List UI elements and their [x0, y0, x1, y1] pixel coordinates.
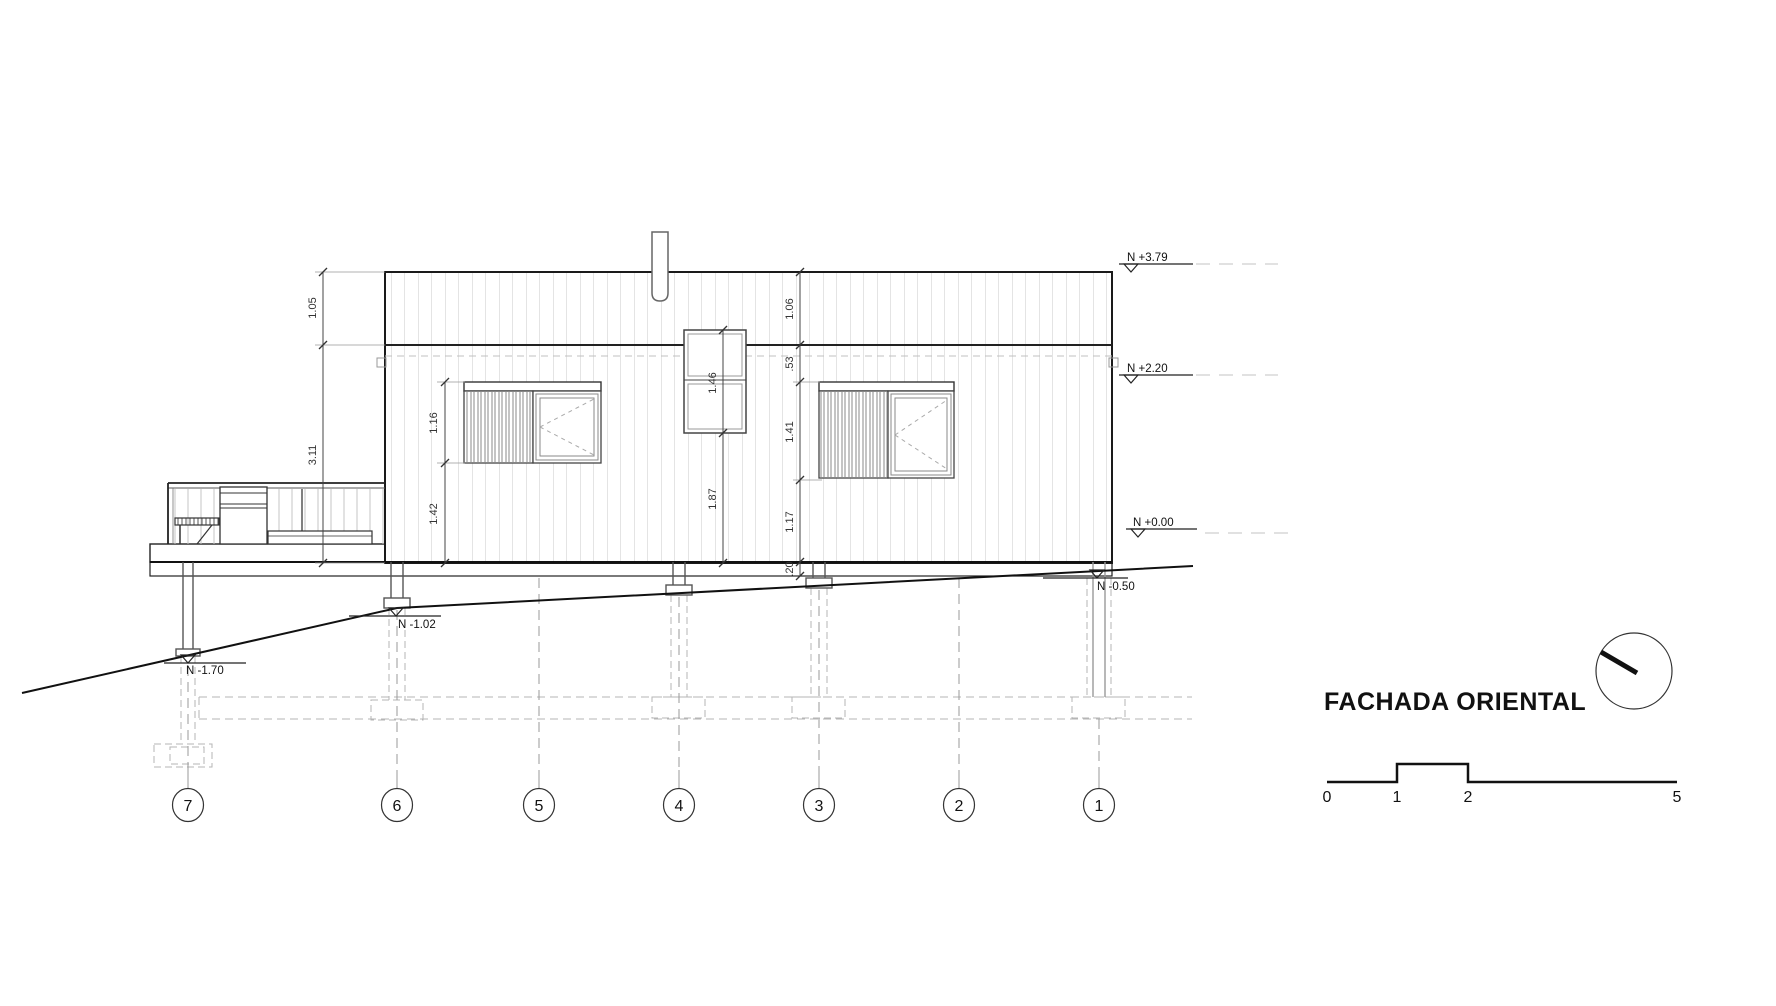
grid-axis-5: 5: [535, 798, 544, 815]
floor-band: [150, 562, 1112, 576]
scale-tick-0: 0: [1323, 789, 1332, 806]
dim-window-left-height: 1.16: [428, 412, 440, 433]
level-eave: N +2.20: [1127, 363, 1168, 375]
dim-wall-left: 3.11: [307, 445, 319, 466]
dim-window-right-below: 1.17: [784, 511, 796, 532]
level-grade-mid: N -1.02: [398, 619, 436, 631]
scale-tick-5: 5: [1673, 789, 1682, 806]
drawing-title: FACHADA ORIENTAL: [1324, 688, 1586, 716]
window-left: [464, 382, 601, 463]
deck-terrace: [168, 483, 385, 544]
grid-axis-3: 3: [815, 798, 824, 815]
dim-window-mid-height: 1.46: [707, 372, 719, 393]
dim-band-to-header: .53: [784, 356, 796, 371]
north-needle-icon: [1601, 652, 1637, 673]
chimney: [652, 232, 668, 301]
dim-floor-band: .20: [784, 561, 796, 576]
scale-bar: 0 1 2 5: [1323, 764, 1682, 806]
window-left-shutter: [465, 392, 532, 462]
dim-window-right-height: 1.41: [784, 421, 796, 442]
grid-lines: [188, 578, 1099, 789]
pillars: [176, 562, 1105, 697]
level-grade-left: N -1.70: [186, 665, 224, 677]
dim-roof-band-right: 1.06: [784, 298, 796, 319]
window-right-shutter: [820, 392, 887, 477]
grid-axis-7: 7: [184, 798, 193, 815]
north-indicator: [1596, 633, 1672, 709]
dim-window-mid-below: 1.87: [707, 488, 719, 509]
foundation-beam: [199, 697, 1192, 719]
grid-bubbles: 7 6 5 4 3 2 1: [173, 789, 1115, 822]
level-roof-top: N +3.79: [1127, 252, 1168, 264]
window-right: [819, 382, 954, 478]
grid-axis-2: 2: [955, 798, 964, 815]
scale-tick-1: 1: [1393, 789, 1402, 806]
grid-axis-4: 4: [675, 798, 684, 815]
deck-cabinet: [220, 487, 267, 544]
scale-tick-2: 2: [1464, 789, 1473, 806]
foundation-pads: [154, 697, 1125, 767]
deck-bench: [268, 531, 372, 544]
grid-axis-6: 6: [393, 798, 402, 815]
dim-window-left-below: 1.42: [428, 503, 440, 524]
level-floor: N +0.00: [1133, 517, 1174, 529]
level-grade-right: N -0.50: [1097, 581, 1135, 593]
elevation-drawing: 1.05 3.11 1.16 1.42 1.46 1.87 1.06 .53 1…: [0, 0, 1776, 1006]
deck-slab: [150, 544, 385, 562]
dim-roof-band-left: 1.05: [307, 297, 319, 318]
grid-axis-1: 1: [1095, 798, 1104, 815]
